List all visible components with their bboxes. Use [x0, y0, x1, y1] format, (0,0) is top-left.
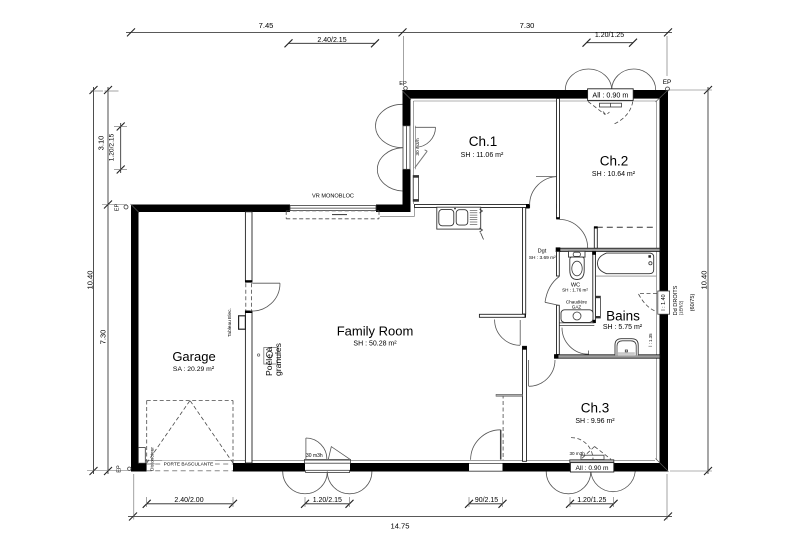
- svg-text:Ch.3: Ch.3: [581, 401, 610, 416]
- svg-text:3.10: 3.10: [97, 136, 106, 151]
- svg-text:10.40: 10.40: [700, 270, 709, 289]
- svg-text:SH : 11.06 m²: SH : 11.06 m²: [461, 152, 504, 159]
- svg-text:(60/75): (60/75): [690, 294, 696, 312]
- svg-text:l : 1.35: l : 1.35: [648, 333, 653, 347]
- svg-text:7.30: 7.30: [99, 330, 108, 345]
- svg-text:30 m3/h: 30 m3/h: [415, 138, 421, 156]
- svg-text:SH : 9.96 m²: SH : 9.96 m²: [575, 418, 615, 425]
- svg-text:1.20/1.25: 1.20/1.25: [577, 497, 606, 504]
- svg-text:7.30: 7.30: [520, 21, 535, 30]
- svg-text:SH : 3.69 m²: SH : 3.69 m²: [529, 255, 556, 261]
- svg-text:Tableau Elec.: Tableau Elec.: [227, 308, 233, 337]
- svg-text:Family Room: Family Room: [337, 324, 414, 339]
- svg-text:SH : 1.76 m²: SH : 1.76 m²: [562, 288, 588, 293]
- svg-text:GAZ: GAZ: [572, 305, 582, 310]
- svg-text:SA : 20.29 m²: SA : 20.29 m²: [173, 366, 215, 373]
- svg-text:SH : 5.75 m²: SH : 5.75 m²: [603, 324, 643, 331]
- svg-text:Ch.2: Ch.2: [600, 154, 629, 169]
- svg-text:14.75: 14.75: [390, 522, 409, 531]
- svg-text:1.20/2.15: 1.20/2.15: [313, 497, 342, 504]
- svg-text:All : 0.90 m: All : 0.90 m: [592, 91, 628, 100]
- svg-text:VR MONOBLOC: VR MONOBLOC: [312, 194, 354, 200]
- svg-text:30 m3h: 30 m3h: [570, 451, 586, 456]
- svg-text:EP: EP: [663, 79, 672, 86]
- svg-text:Disjoncteur: Disjoncteur: [150, 447, 156, 471]
- svg-text:1.20/2.15: 1.20/2.15: [109, 133, 116, 161]
- svg-text:Ch.1: Ch.1: [469, 134, 498, 149]
- svg-text:2.40/2.15: 2.40/2.15: [317, 37, 346, 44]
- svg-text:All : 0.90 m: All : 0.90 m: [576, 465, 609, 472]
- svg-text:Dgt: Dgt: [538, 249, 547, 255]
- svg-text:1.20/1.25: 1.20/1.25: [595, 32, 624, 39]
- svg-text:EP: EP: [117, 465, 123, 473]
- svg-text:PORTE BASCULANTE: PORTE BASCULANTE: [164, 462, 214, 468]
- svg-text:Garage: Garage: [172, 349, 215, 364]
- svg-text:(1ER/2): (1ER/2): [679, 300, 684, 315]
- svg-text:2.40/2.00: 2.40/2.00: [174, 497, 203, 504]
- svg-text:10.40: 10.40: [86, 270, 95, 289]
- svg-text:l : 1.40: l : 1.40: [661, 294, 667, 310]
- svg-text:30 m3h: 30 m3h: [306, 453, 323, 459]
- svg-text:7.45: 7.45: [259, 21, 274, 30]
- svg-text:granules: granules: [273, 343, 283, 376]
- svg-text:SH : 50.28 m²: SH : 50.28 m²: [353, 341, 397, 348]
- svg-text:Bains: Bains: [606, 309, 640, 324]
- svg-text:SH : 10.64 m²: SH : 10.64 m²: [592, 171, 636, 178]
- svg-text:90/2.15: 90/2.15: [475, 497, 498, 504]
- svg-text:EP: EP: [399, 81, 407, 87]
